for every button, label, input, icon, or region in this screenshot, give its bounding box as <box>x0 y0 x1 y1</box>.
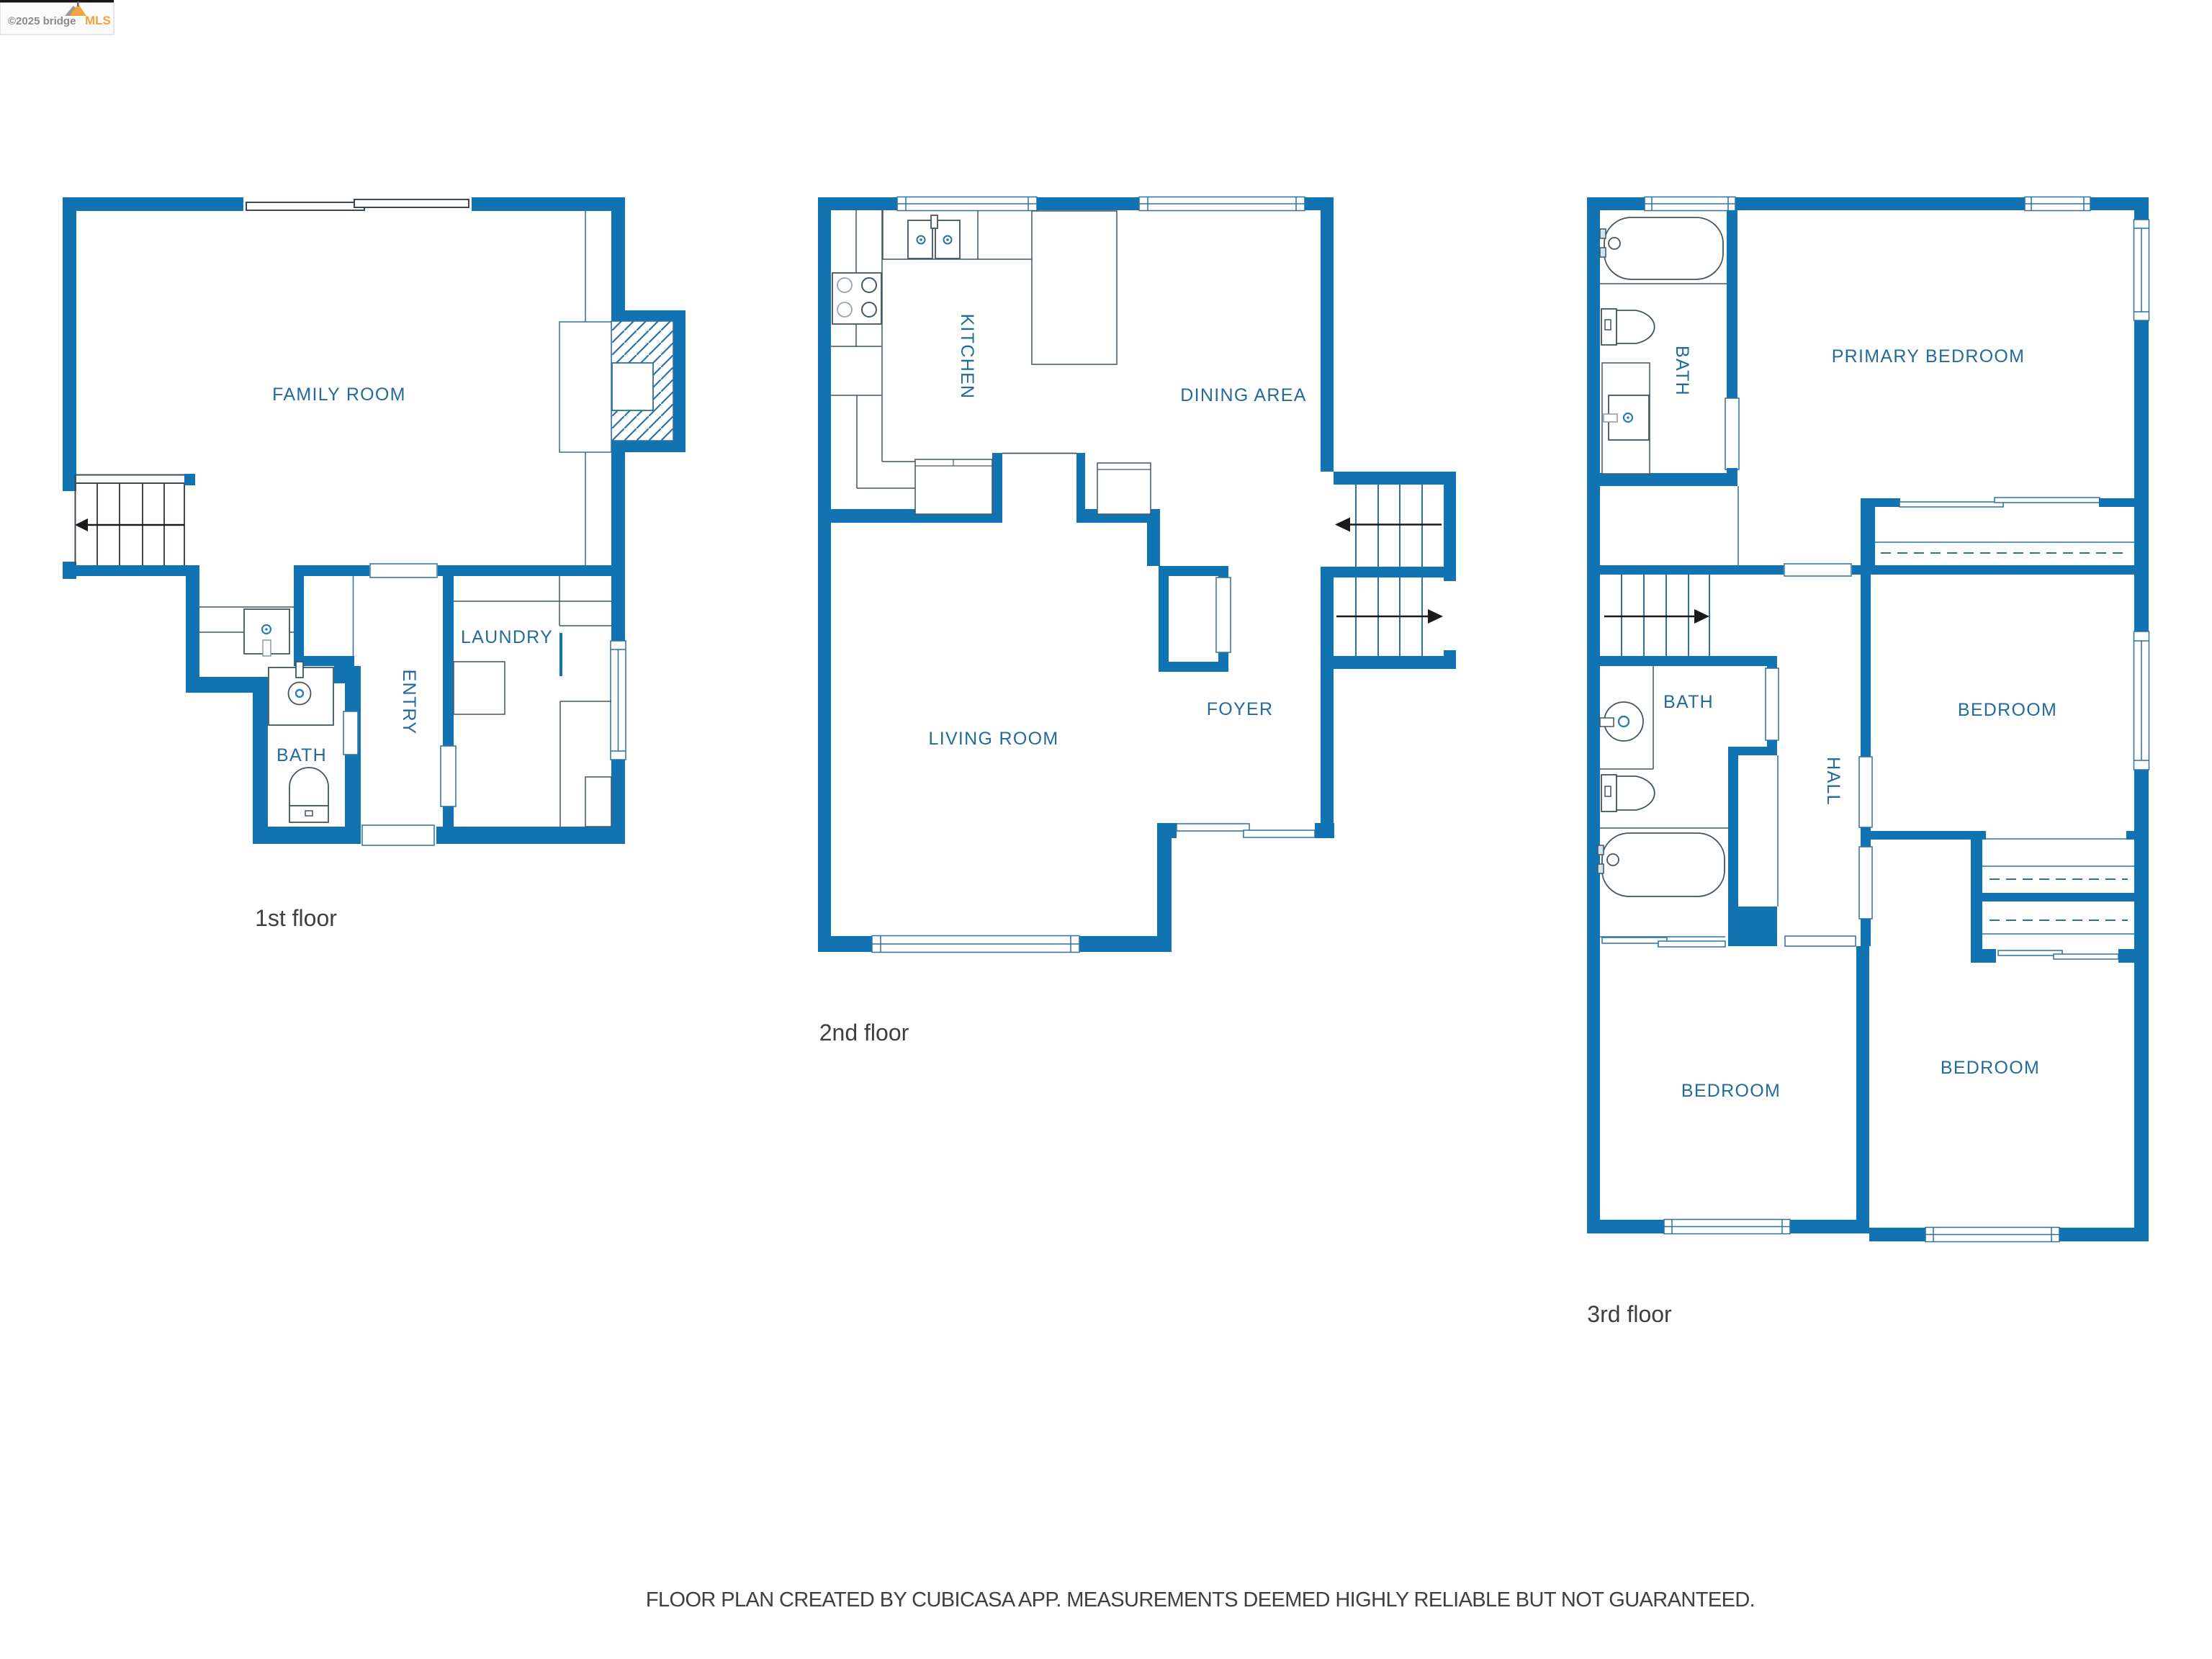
svg-text:LAUNDRY: LAUNDRY <box>461 627 553 647</box>
svg-text:2nd floor: 2nd floor <box>819 1020 909 1046</box>
svg-text:BATH: BATH <box>276 745 327 765</box>
svg-text:MLS: MLS <box>85 14 111 27</box>
svg-text:FOYER: FOYER <box>1207 699 1274 719</box>
svg-text:BEDROOM: BEDROOM <box>1941 1058 2040 1078</box>
svg-text:BEDROOM: BEDROOM <box>1681 1081 1781 1101</box>
svg-text:FAMILY ROOM: FAMILY ROOM <box>272 385 406 405</box>
svg-text:FLOOR PLAN CREATED BY CUBICASA: FLOOR PLAN CREATED BY CUBICASA APP. MEAS… <box>646 1588 1755 1611</box>
svg-text:LIVING ROOM: LIVING ROOM <box>929 729 1059 749</box>
svg-text:ENTRY: ENTRY <box>399 670 419 735</box>
svg-text:DINING AREA: DINING AREA <box>1180 385 1306 405</box>
svg-text:BEDROOM: BEDROOM <box>1958 700 2057 720</box>
svg-text:1st floor: 1st floor <box>255 905 337 931</box>
svg-text:PRIMARY BEDROOM: PRIMARY BEDROOM <box>1832 346 2026 367</box>
svg-text:BATH: BATH <box>1663 692 1714 712</box>
svg-text:HALL: HALL <box>1823 757 1843 806</box>
svg-text:3rd floor: 3rd floor <box>1587 1301 1672 1327</box>
svg-text:©2025 bridge: ©2025 bridge <box>8 15 76 27</box>
svg-text:BATH: BATH <box>1672 346 1692 396</box>
svg-text:KITCHEN: KITCHEN <box>957 314 977 400</box>
